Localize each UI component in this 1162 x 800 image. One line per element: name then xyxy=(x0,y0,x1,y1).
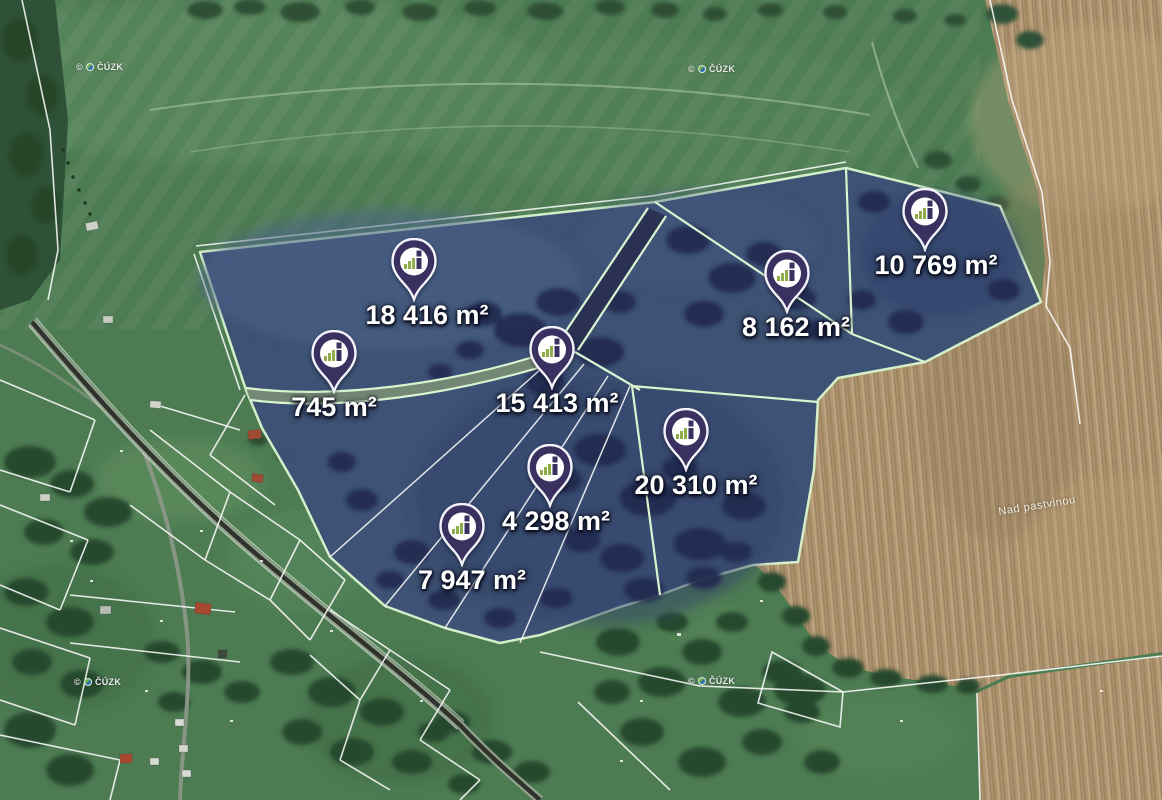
parcel-pin[interactable]: 18 416 m² xyxy=(391,238,437,302)
attribution-agency: ČÚZK xyxy=(97,62,123,72)
map-pin-icon xyxy=(311,330,357,394)
parcel-pin[interactable]: 4 298 m² xyxy=(527,444,573,508)
cuzk-logo-icon xyxy=(86,63,94,71)
parcel-area-label: 4 298 m² xyxy=(502,507,610,535)
parcel-area-label: 15 413 m² xyxy=(495,389,618,417)
parcel-area-label: 8 162 m² xyxy=(742,313,850,341)
cuzk-logo-icon xyxy=(698,65,706,73)
map-attribution: © ČÚZK xyxy=(76,62,123,72)
copyright-symbol: © xyxy=(76,62,83,72)
attribution-agency: ČÚZK xyxy=(95,677,121,687)
map-attribution: © ČÚZK xyxy=(688,64,735,74)
cuzk-logo-icon xyxy=(84,678,92,686)
map-attribution: © ČÚZK xyxy=(688,676,735,686)
map-pin-icon xyxy=(529,326,575,390)
map-pin-icon xyxy=(663,408,709,472)
parcel-area-label: 745 m² xyxy=(291,393,377,421)
map-pin-icon xyxy=(902,188,948,252)
attribution-agency: ČÚZK xyxy=(709,676,735,686)
copyright-symbol: © xyxy=(74,677,81,687)
parcel-pin[interactable]: 7 947 m² xyxy=(439,503,485,567)
parcel-area-label: 18 416 m² xyxy=(365,301,488,329)
copyright-symbol: © xyxy=(688,676,695,686)
parcel-area-label: 7 947 m² xyxy=(418,566,526,594)
parcel-area-label: 20 310 m² xyxy=(634,471,757,499)
parcel-pin[interactable]: 745 m² xyxy=(311,330,357,394)
cuzk-logo-icon xyxy=(698,677,706,685)
map-attribution: © ČÚZK xyxy=(74,677,121,687)
parcel-pin[interactable]: 20 310 m² xyxy=(663,408,709,472)
copyright-symbol: © xyxy=(688,64,695,74)
map-pin-icon xyxy=(391,238,437,302)
attribution-agency: ČÚZK xyxy=(709,64,735,74)
map-pin-icon xyxy=(527,444,573,508)
parcel-pin[interactable]: 8 162 m² xyxy=(764,250,810,314)
parcel-area-label: 10 769 m² xyxy=(874,251,997,279)
parcel-pin[interactable]: 15 413 m² xyxy=(529,326,575,390)
map-pin-icon xyxy=(439,503,485,567)
map-pin-icon xyxy=(764,250,810,314)
parcel-pin[interactable]: 10 769 m² xyxy=(902,188,948,252)
aerial-map-canvas[interactable]: © ČÚZK © ČÚZK © ČÚZK © ČÚZK Nad pastvino… xyxy=(0,0,1162,800)
